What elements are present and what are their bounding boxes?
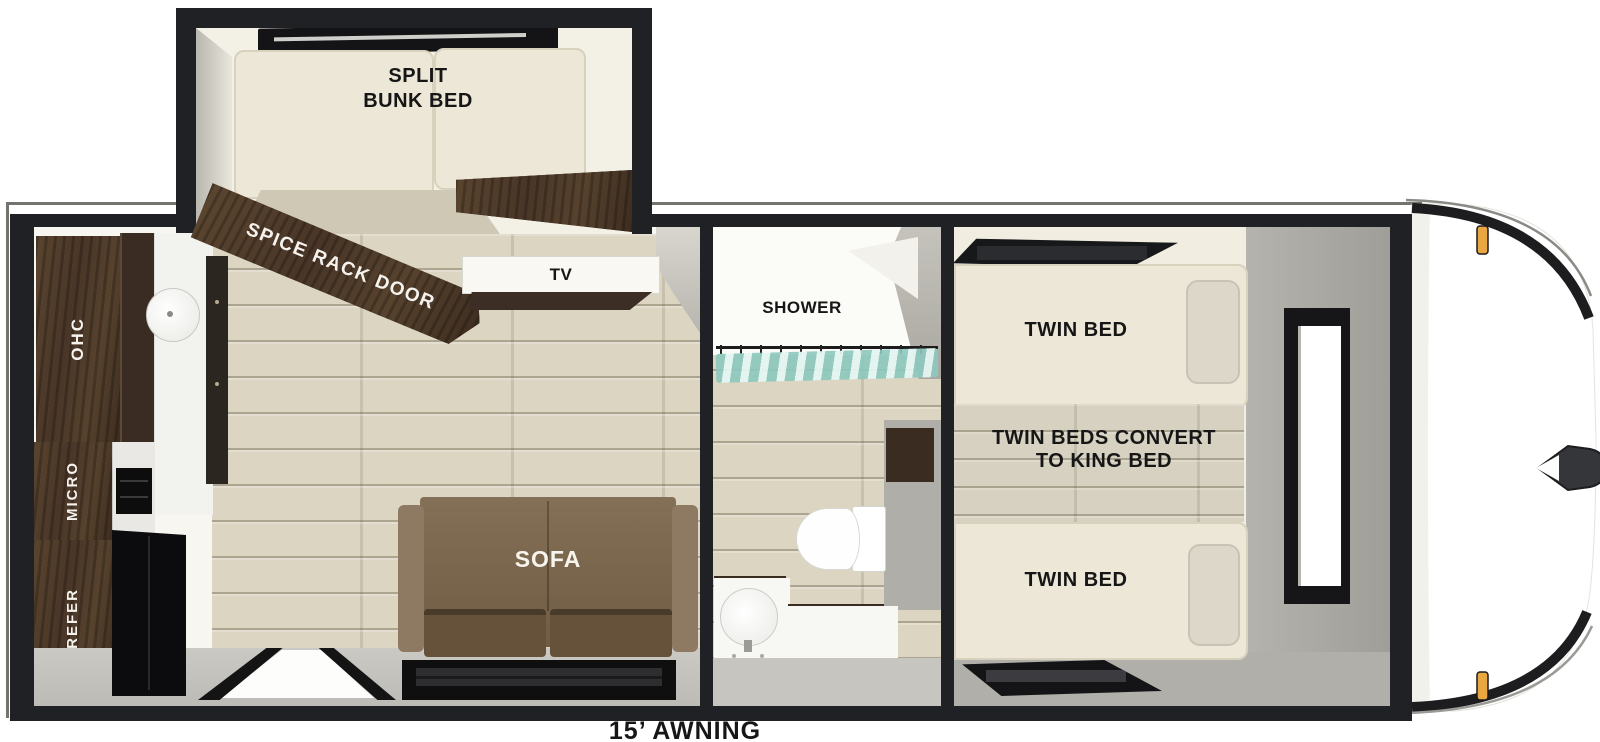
wall-living-bath	[700, 214, 713, 714]
marker-light-top	[1477, 226, 1488, 254]
awning-label: 15’ AWNING	[540, 716, 830, 742]
front-cap	[0, 0, 1600, 742]
marker-light-bottom	[1477, 672, 1488, 700]
exterior-wall-front	[1390, 214, 1412, 721]
wall-bath-bedroom	[941, 214, 954, 714]
exterior-wall-left	[10, 214, 34, 721]
floorplan-diagram: SPLIT BUNK BED SPICE RACK DOOR TV OHC MI…	[0, 0, 1600, 742]
